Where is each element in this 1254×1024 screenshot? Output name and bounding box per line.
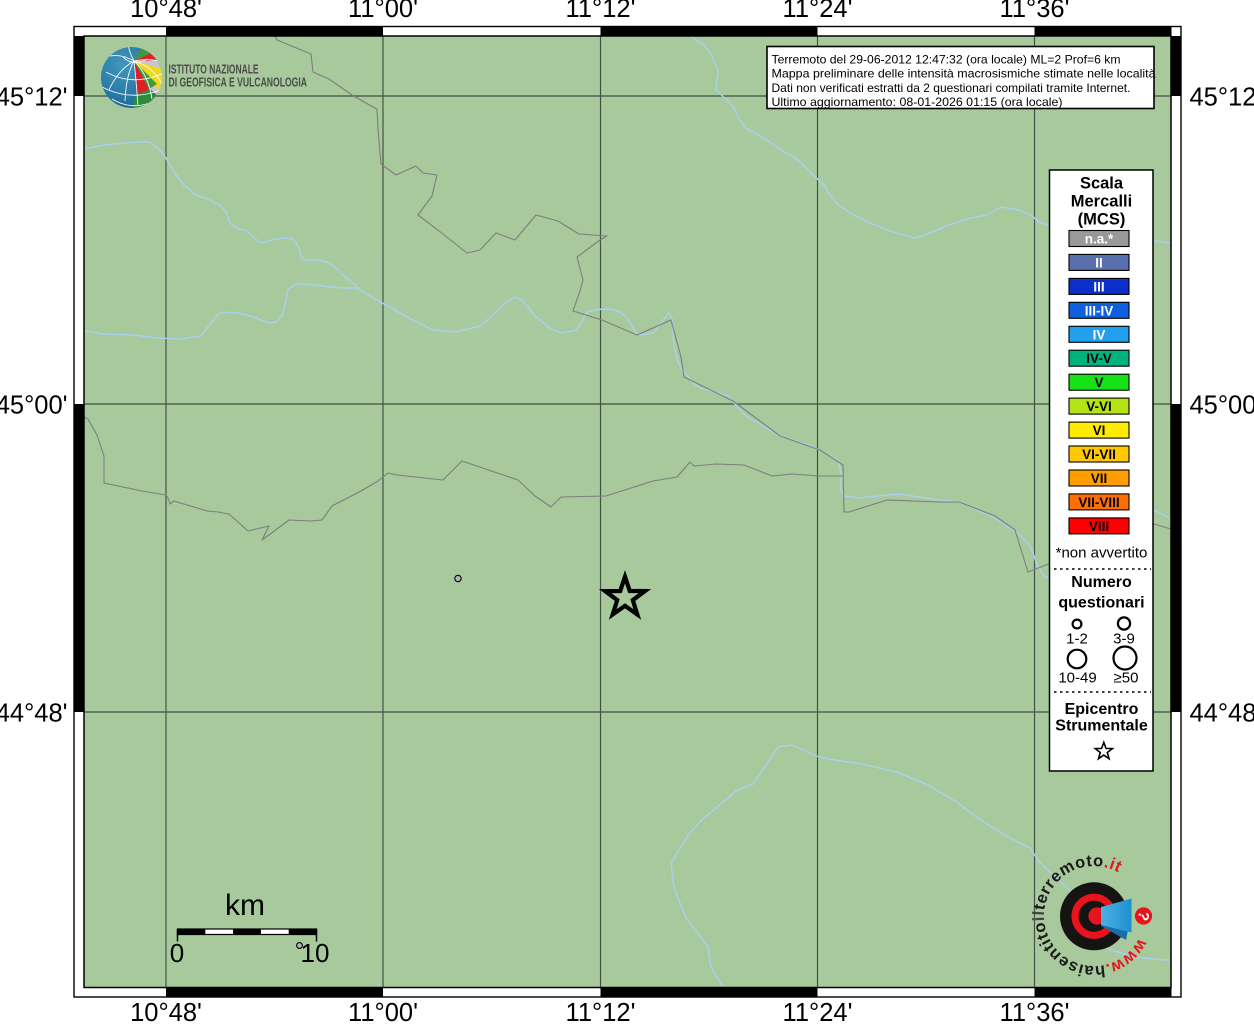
svg-text:VII: VII <box>1091 471 1108 486</box>
svg-text:DI GEOFISICA E VULCANOLOGIA: DI GEOFISICA E VULCANOLOGIA <box>169 76 308 90</box>
svg-text:Dati non verificati estratti d: Dati non verificati estratti da 2 questi… <box>772 81 1131 95</box>
svg-text:11°36': 11°36' <box>1000 0 1070 23</box>
svg-text:III: III <box>1093 279 1104 294</box>
svg-text:*non avvertito: *non avvertito <box>1056 545 1148 562</box>
svg-text:III-IV: III-IV <box>1085 303 1114 318</box>
svg-text:11°12': 11°12' <box>566 0 636 23</box>
svg-text:Ultimo aggiornamento: 08-01-20: Ultimo aggiornamento: 08-01-2026 01:15 (… <box>772 95 1063 109</box>
svg-text:10°48': 10°48' <box>130 999 202 1024</box>
svg-text:(MCS): (MCS) <box>1078 211 1126 229</box>
svg-text:11°12': 11°12' <box>566 999 636 1024</box>
svg-text:IV-V: IV-V <box>1086 351 1112 366</box>
svg-text:VI-VII: VI-VII <box>1082 447 1116 462</box>
svg-text:Epicentro: Epicentro <box>1065 701 1139 718</box>
svg-text:10-49: 10-49 <box>1058 670 1096 687</box>
svg-text:11°00': 11°00' <box>348 0 418 23</box>
svg-text:3-9: 3-9 <box>1113 631 1135 648</box>
svg-text:V: V <box>1094 375 1103 390</box>
svg-text:0: 0 <box>170 938 184 968</box>
svg-text:II: II <box>1095 255 1103 270</box>
svg-text:45°00': 45°00' <box>1190 391 1254 419</box>
svg-text:n.a.*: n.a.* <box>1085 232 1114 247</box>
svg-text:1-2: 1-2 <box>1066 631 1088 648</box>
svg-text:10: 10 <box>301 938 330 968</box>
svg-text:V-VI: V-VI <box>1086 399 1112 414</box>
svg-text:11°24': 11°24' <box>783 999 853 1024</box>
svg-text:Scala: Scala <box>1080 175 1124 193</box>
svg-text:VII-VIII: VII-VIII <box>1078 495 1119 510</box>
svg-text:IV: IV <box>1093 327 1106 342</box>
svg-text:Strumentale: Strumentale <box>1055 718 1148 735</box>
svg-text:44°48': 44°48' <box>0 699 68 727</box>
svg-text:Mercalli: Mercalli <box>1071 193 1132 211</box>
svg-text:ISTITUTO NAZIONALE: ISTITUTO NAZIONALE <box>169 63 259 77</box>
svg-text:45°00': 45°00' <box>0 391 68 419</box>
svg-text:Numero: Numero <box>1071 574 1132 591</box>
svg-text:11°00': 11°00' <box>348 999 418 1024</box>
svg-text:≥50: ≥50 <box>1114 670 1139 687</box>
svg-text:Terremoto del 29-06-2012 12:47: Terremoto del 29-06-2012 12:47:32 (ora l… <box>772 52 1121 66</box>
svg-text:44°48': 44°48' <box>1190 699 1254 727</box>
svg-text:Mappa preliminare delle intens: Mappa preliminare delle intensità macros… <box>772 67 1156 81</box>
svg-text:11°36': 11°36' <box>1000 999 1070 1024</box>
svg-text:VIII: VIII <box>1089 519 1109 534</box>
svg-text:km: km <box>225 889 265 922</box>
svg-text:VI: VI <box>1093 423 1106 438</box>
svg-text:10°48': 10°48' <box>130 0 202 23</box>
svg-text:11°24': 11°24' <box>783 0 853 23</box>
svg-text:45°12': 45°12' <box>1190 83 1254 111</box>
svg-text:45°12': 45°12' <box>0 83 68 111</box>
svg-text:questionari: questionari <box>1058 595 1144 612</box>
